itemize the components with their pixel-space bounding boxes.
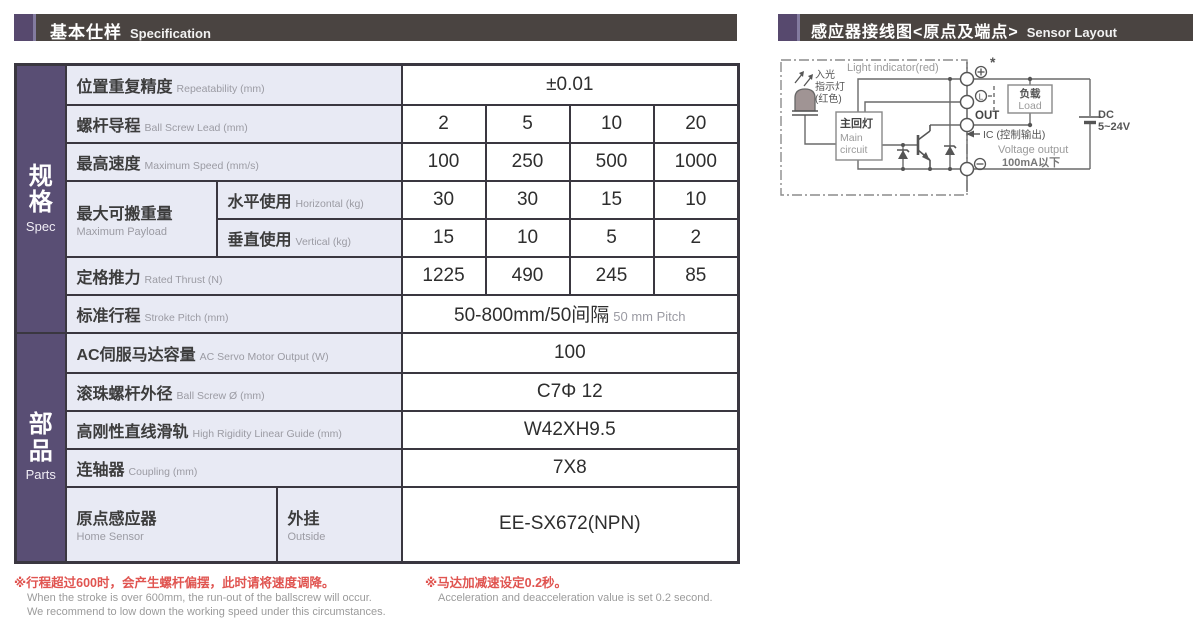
- terminal-plus-asterisk: *: [990, 54, 996, 70]
- value-cell: 15: [402, 219, 486, 257]
- label-repeatability: 位置重复精度Repeatability (mm): [66, 65, 402, 105]
- terminal-minus-icon: [975, 159, 986, 170]
- value-home-sensor: EE-SX672(NPN): [402, 487, 739, 563]
- spec-section-header: 基本仕样 Specification: [14, 14, 737, 41]
- label-coupling: 连轴器Coupling (mm): [66, 449, 402, 487]
- label-ball-screw-lead: 螺杆导程Ball Screw Lead (mm): [66, 105, 402, 143]
- row-stroke-pitch: 标准行程Stroke Pitch (mm) 50-800mm/50间隔50 mm…: [16, 295, 739, 333]
- row-home-sensor: 原点感应器Home Sensor 外挂Outside EE-SX672(NPN): [16, 487, 739, 563]
- value-cell: 10: [570, 105, 654, 143]
- row-ball-screw-diameter: 滚珠螺杆外径Ball Screw Ø (mm) C7Φ 12: [16, 373, 739, 411]
- value-cell: 5: [570, 219, 654, 257]
- value-cell: 5: [486, 105, 570, 143]
- dc-range-label: 5~24V: [1098, 121, 1131, 133]
- value-cell: 2: [654, 219, 739, 257]
- label-servo-output: AC伺服马达容量AC Servo Motor Output (W): [66, 333, 402, 373]
- value-cell: 15: [570, 181, 654, 219]
- footnote-stroke-zh: ※行程超过600时，会产生螺杆偏摆，此时请将速度调降。: [14, 575, 424, 592]
- value-cell: 10: [486, 219, 570, 257]
- load-label-zh: 负载: [1020, 87, 1042, 100]
- label-vertical: 垂直使用Vertical (kg): [217, 219, 402, 257]
- light-label-zh3: (红色): [815, 92, 842, 105]
- row-payload-horizontal: 最大可搬重量Maximum Payload 水平使用Horizontal (kg…: [16, 181, 739, 219]
- specification-table: 规格 Spec 位置重复精度Repeatability (mm) ±0.01 螺…: [14, 63, 740, 564]
- ic-label: IC (控制输出): [983, 128, 1045, 141]
- value-cell: 250: [486, 143, 570, 181]
- main-circuit-en2: circuit: [840, 144, 868, 156]
- label-home-sensor: 原点感应器Home Sensor: [66, 487, 277, 563]
- zener-diode-icon: [897, 150, 909, 159]
- value-cell: 20: [654, 105, 739, 143]
- value-servo-output: 100: [402, 333, 739, 373]
- footnote-stroke: ※行程超过600时，会产生螺杆偏摆，此时请将速度调降。 When the str…: [14, 575, 424, 619]
- footnote-acceleration-en1: Acceleration and deacceleration value is…: [425, 592, 755, 606]
- zener-diode-icon: [944, 146, 956, 155]
- row-linear-guide: 高刚性直线滑轨High Rigidity Linear Guide (mm) W…: [16, 411, 739, 449]
- group-spec-en: Spec: [17, 219, 65, 234]
- group-parts: 部品 Parts: [16, 333, 66, 563]
- label-max-payload: 最大可搬重量Maximum Payload: [66, 181, 217, 257]
- value-ball-screw-diameter: C7Φ 12: [402, 373, 739, 411]
- sensor-wiring-diagram: 入光 指示灯 (红色) Light indicator(red) 主回灯 Mai…: [778, 52, 1200, 222]
- row-coupling: 连轴器Coupling (mm) 7X8: [16, 449, 739, 487]
- footnote-stroke-en1: When the stroke is over 600mm, the run-o…: [14, 592, 424, 606]
- terminal-l-icon: L: [976, 86, 995, 110]
- main-circuit-en1: Main: [840, 132, 863, 144]
- value-cell: 245: [570, 257, 654, 295]
- datasheet-page: 基本仕样 Specification 感应器接线图<原点及端点> Sensor …: [0, 0, 1200, 632]
- row-rated-thrust: 定格推力Rated Thrust (N) 1225 490 245 85: [16, 257, 739, 295]
- value-cell: 500: [570, 143, 654, 181]
- value-linear-guide: W42XH9.5: [402, 411, 739, 449]
- light-label-en: Light indicator(red): [847, 62, 939, 74]
- light-label-zh2: 指示灯: [815, 80, 845, 93]
- light-label-zh1: 入光: [815, 68, 835, 81]
- dc-label: DC: [1098, 109, 1114, 121]
- footnote-stroke-en2: We recommend to low down the working spe…: [14, 606, 424, 620]
- value-cell: 100: [402, 143, 486, 181]
- group-spec: 规格 Spec: [16, 65, 66, 333]
- row-repeatability: 规格 Spec 位置重复精度Repeatability (mm) ±0.01: [16, 65, 739, 105]
- footnote-acceleration-zh: ※马达加减速设定0.2秒。: [425, 575, 755, 592]
- value-stroke-pitch: 50-800mm/50间隔50 mm Pitch: [402, 295, 739, 333]
- current-limit-label: 100mA以下: [1002, 156, 1060, 169]
- value-cell: 30: [486, 181, 570, 219]
- group-parts-en: Parts: [17, 467, 65, 482]
- label-rated-thrust: 定格推力Rated Thrust (N): [66, 257, 402, 295]
- load-label-en: Load: [1018, 100, 1042, 112]
- label-horizontal: 水平使用Horizontal (kg): [217, 181, 402, 219]
- svg-text:L: L: [979, 92, 984, 102]
- row-max-speed: 最高速度Maximum Speed (mm/s) 100 250 500 100…: [16, 143, 739, 181]
- value-repeatability: ±0.01: [402, 65, 739, 105]
- value-cell: 2: [402, 105, 486, 143]
- group-spec-zh: 规格: [28, 164, 54, 217]
- label-stroke-pitch: 标准行程Stroke Pitch (mm): [66, 295, 402, 333]
- footnote-acceleration: ※马达加减速设定0.2秒。 Acceleration and deacceler…: [425, 575, 755, 606]
- sensor-section-header: 感应器接线图<原点及端点> Sensor Layout: [778, 14, 1193, 41]
- value-cell: 30: [402, 181, 486, 219]
- spec-header-title-en: Specification: [130, 26, 211, 41]
- value-cell: 1000: [654, 143, 739, 181]
- voltage-output-label: Voltage output: [998, 144, 1068, 156]
- transistor-icon: [918, 125, 930, 169]
- terminal-out-label: OUT: [975, 110, 999, 122]
- main-circuit-zh: 主回灯: [840, 116, 873, 130]
- group-parts-zh: 部品: [28, 412, 54, 465]
- terminal-plus-icon: [976, 67, 987, 78]
- row-servo-output: 部品 Parts AC伺服马达容量AC Servo Motor Output (…: [16, 333, 739, 373]
- spec-header-title-zh: 基本仕样: [50, 18, 122, 43]
- purple-accent-block: [14, 14, 36, 41]
- light-arrows-icon: [795, 71, 813, 86]
- sensor-header-title-en: Sensor Layout: [1027, 25, 1117, 40]
- value-cell: 10: [654, 181, 739, 219]
- label-max-speed: 最高速度Maximum Speed (mm/s): [66, 143, 402, 181]
- sensor-header-title-zh: 感应器接线图<原点及端点>: [811, 18, 1019, 42]
- value-cell: 490: [486, 257, 570, 295]
- label-outside: 外挂Outside: [277, 487, 402, 563]
- label-ball-screw-diameter: 滚珠螺杆外径Ball Screw Ø (mm): [66, 373, 402, 411]
- label-linear-guide: 高刚性直线滑轨High Rigidity Linear Guide (mm): [66, 411, 402, 449]
- value-coupling: 7X8: [402, 449, 739, 487]
- value-cell: 1225: [402, 257, 486, 295]
- row-ball-screw-lead: 螺杆导程Ball Screw Lead (mm) 2 5 10 20: [16, 105, 739, 143]
- value-cell: 85: [654, 257, 739, 295]
- purple-accent-block: [778, 14, 800, 41]
